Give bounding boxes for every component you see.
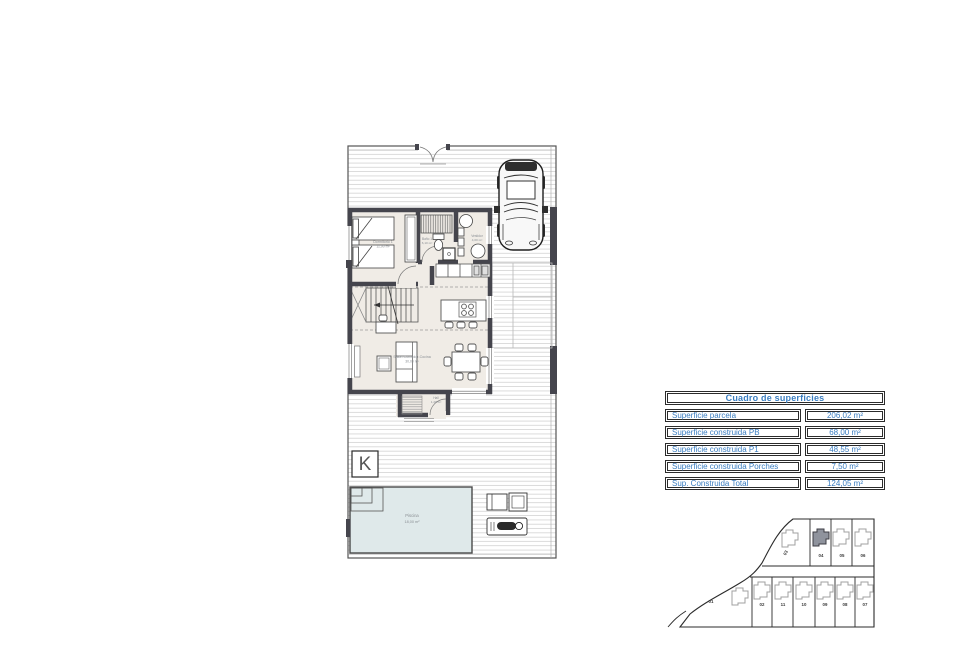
row-value: 68,00 m² (829, 428, 861, 437)
pool-area: 18,00 m² (405, 520, 421, 524)
row-label-cell: Superficie construida Porches (665, 460, 801, 473)
toilet-tank (433, 234, 444, 240)
north-marker: K (352, 451, 378, 477)
plot-label-02: 02 (760, 602, 765, 607)
plot-label-10: 10 (802, 602, 807, 607)
toilet (434, 240, 442, 251)
row-value: 206,02 m² (827, 411, 863, 420)
surfaces-table-title-text: Cuadro de superficies (726, 393, 825, 403)
person-on-lounger (497, 522, 516, 530)
plot-label-06: 06 (861, 553, 866, 558)
surfaces-table: Cuadro de superficies Superficie parcela… (665, 391, 885, 490)
row-label-cell: Superficie construida P1 (665, 443, 801, 456)
plot-label-08: 08 (843, 602, 848, 607)
dressing-area: 4,00 m² (472, 238, 483, 242)
table-row: Superficie parcela 206,02 m² (665, 409, 885, 422)
row-value-cell: 206,02 m² (805, 409, 885, 422)
plot-label-11: 11 (781, 602, 786, 607)
car-top-view (494, 160, 548, 250)
site-plan: 01 02 03 04 05 06 07 08 09 10 11 (668, 519, 874, 627)
row-label-cell: Superficie construida PB (665, 426, 801, 439)
living-area: 30,00 m² (405, 360, 419, 364)
plot-label-09: 09 (823, 602, 828, 607)
row-label: Superficie parcela (672, 411, 736, 420)
living-label: Salón-Comedor-Cocina (393, 355, 431, 359)
plot-label-01: 01 (709, 599, 714, 604)
party-wall (550, 346, 557, 394)
porch-steps (402, 396, 422, 414)
kitchen-counter (436, 264, 490, 277)
row-value: 7,50 m² (831, 462, 858, 471)
plot-label-07: 07 (863, 602, 868, 607)
row-value: 48,55 m² (829, 445, 861, 454)
pool-skimmer (346, 519, 351, 537)
pool-label: Piscina (405, 513, 419, 518)
bedroom-area: 11,90 m² (376, 245, 390, 249)
floor-plan-drawing: K Dormitorio 1 11,90 m² Baño 1 6,10 m² V… (0, 0, 960, 672)
surfaces-table-title: Cuadro de superficies (665, 391, 885, 405)
row-value-cell: 68,00 m² (805, 426, 885, 439)
row-value: 124,05 m² (827, 479, 863, 488)
plot-label-04: 04 (819, 553, 824, 558)
hall-area: 1,20 m² (431, 400, 442, 404)
row-label-cell: Sup. Construida Total (665, 477, 801, 490)
row-label-cell: Superficie parcela (665, 409, 801, 422)
bath-area: 6,10 m² (422, 241, 433, 245)
row-label: Superficie construida Porches (672, 462, 778, 471)
north-marker-glyph: K (359, 454, 372, 475)
row-value-cell: 48,55 m² (805, 443, 885, 456)
shower (443, 248, 455, 260)
closet (421, 215, 452, 233)
table-row: Superficie construida Porches 7,50 m² (665, 460, 885, 473)
table-row: Sup. Construida Total 124,05 m² (665, 477, 885, 490)
row-label: Sup. Construida Total (672, 479, 748, 488)
row-value-cell: 124,05 m² (805, 477, 885, 490)
table-row: Superficie construida PB 68,00 m² (665, 426, 885, 439)
table-row: Superficie construida P1 48,55 m² (665, 443, 885, 456)
plan-sheet: { "surfaces_table": { "title": "Cuadro d… (0, 0, 960, 672)
row-value-cell: 7,50 m² (805, 460, 885, 473)
plot-label-05: 05 (840, 553, 845, 558)
bedroom-label: Dormitorio 1 (373, 240, 393, 244)
row-label: Superficie construida PB (672, 428, 760, 437)
row-label: Superficie construida P1 (672, 445, 759, 454)
party-wall (550, 207, 557, 265)
